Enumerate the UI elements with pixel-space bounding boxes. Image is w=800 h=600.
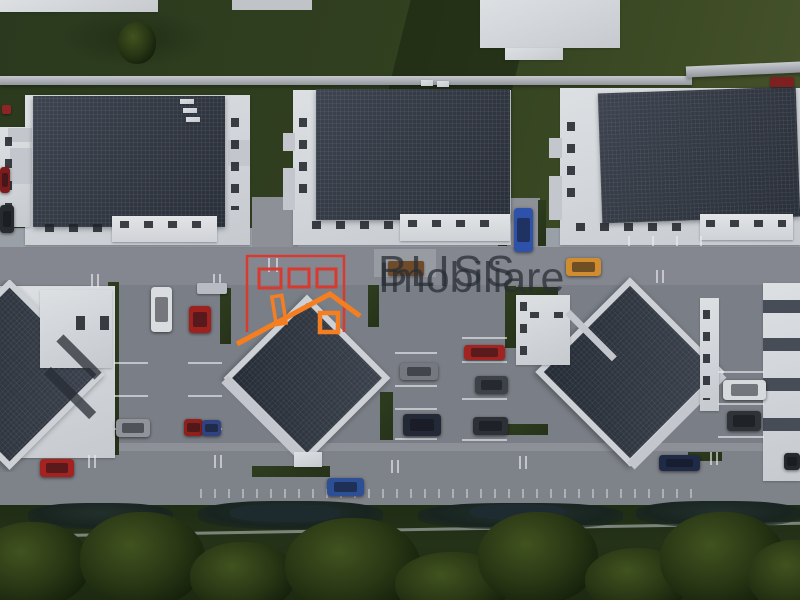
building-a-dormer-windows	[120, 221, 210, 228]
logo-window	[259, 269, 281, 288]
building-g-window-band	[763, 300, 800, 313]
building-g-column-windows	[703, 310, 710, 400]
fence-posts	[200, 489, 695, 498]
tree-shadow	[60, 8, 210, 68]
building-a-roof-dormer	[183, 108, 197, 113]
grass-strip	[380, 392, 393, 440]
building-b-windows	[299, 118, 307, 206]
building-c-facade-windows	[576, 223, 691, 231]
grass-strip	[688, 452, 722, 461]
building-c-balcony	[549, 176, 562, 220]
street-bottom	[0, 451, 800, 508]
building-b-balcony	[283, 168, 295, 210]
driveway-green-right	[538, 200, 546, 246]
building-f-facade-windows	[530, 312, 566, 318]
curb	[0, 443, 800, 451]
building-a-windows	[5, 137, 12, 217]
building-b-roof	[316, 89, 510, 220]
building-a-dormer	[112, 216, 217, 242]
building-a-balcony	[10, 148, 32, 184]
building-a-windows	[231, 118, 239, 210]
building-c-balcony	[549, 138, 562, 158]
logo-roof	[237, 294, 360, 344]
building-b-dormer	[400, 214, 510, 241]
top-white-building-tab	[505, 48, 563, 60]
grass-strip	[504, 424, 548, 435]
building-a-roof	[33, 96, 225, 227]
building-f-facade-windows	[520, 302, 527, 360]
top-roof-left	[0, 0, 158, 12]
fence-wall	[0, 76, 692, 85]
building-b-facade-windows	[312, 221, 397, 229]
top-white-building	[480, 0, 620, 48]
building-c-windows	[567, 122, 575, 207]
building-a-roof-dormer	[186, 117, 200, 122]
building-e-entry	[294, 452, 322, 467]
logo-window	[317, 269, 336, 287]
building-d-windows	[76, 316, 112, 330]
building-b-balcony	[283, 133, 295, 151]
building-c-dormer-windows	[706, 220, 786, 227]
watermark-line2: Imobiliare	[378, 257, 564, 300]
building-a-roof-dormer	[180, 99, 194, 104]
building-b-dormer-windows	[408, 220, 503, 227]
green-belt	[0, 505, 800, 600]
logo-window	[289, 269, 309, 287]
building-g-window-band	[763, 418, 800, 431]
grass-strip	[252, 466, 330, 477]
building-b-roof-dormer	[421, 80, 433, 86]
building-b-roof-dormer	[437, 81, 449, 87]
building-c-roof	[598, 87, 800, 224]
top-roof-left2	[232, 0, 312, 10]
building-g-window-band	[763, 378, 800, 391]
aerial-render: BLISS Imobiliare	[0, 0, 800, 600]
building-g-window-band	[763, 338, 800, 351]
building-c-dormer	[700, 214, 793, 240]
bliss-logo-icon	[228, 248, 368, 350]
logo-attic-window	[320, 313, 338, 332]
